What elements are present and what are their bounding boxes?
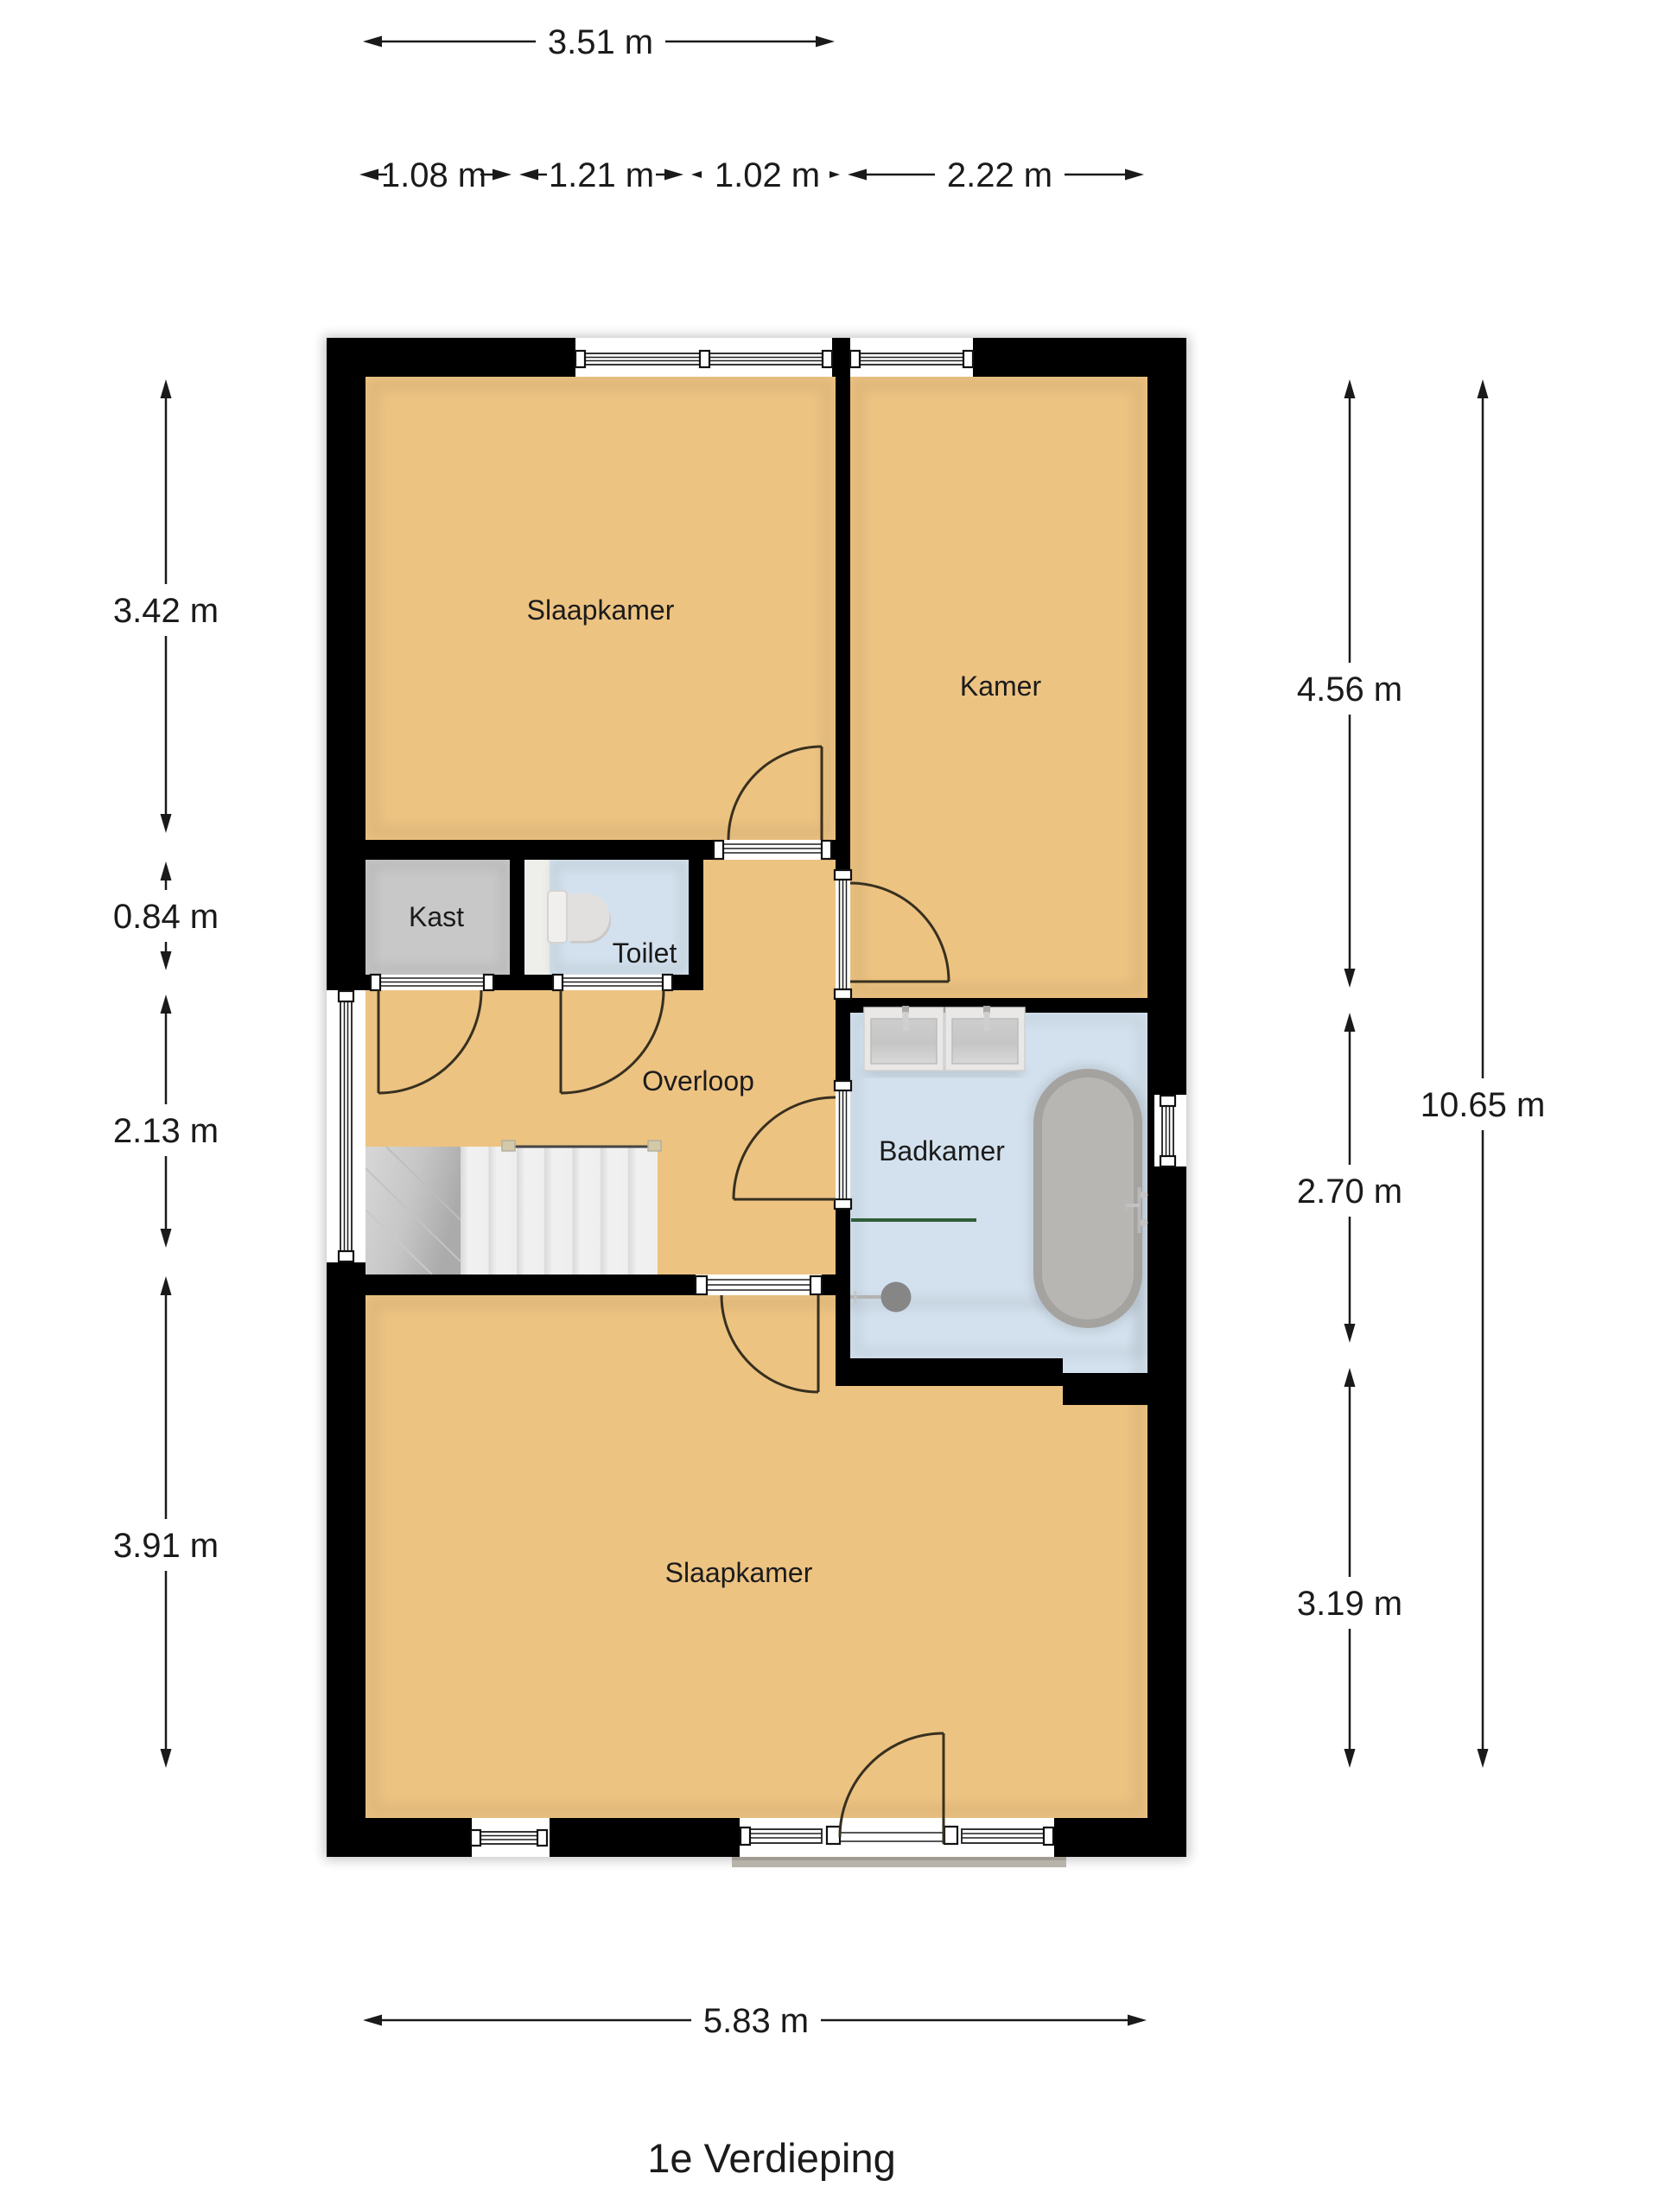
svg-text:Kamer: Kamer (960, 671, 1042, 702)
svg-text:2.22 m: 2.22 m (947, 156, 1052, 194)
svg-text:Toilet: Toilet (613, 938, 677, 969)
svg-text:3.19 m: 3.19 m (1297, 1585, 1402, 1623)
svg-text:1.21 m: 1.21 m (549, 156, 654, 194)
svg-text:Badkamer: Badkamer (879, 1135, 1005, 1166)
svg-text:3.91 m: 3.91 m (113, 1527, 219, 1565)
svg-text:1.02 m: 1.02 m (715, 156, 820, 194)
svg-text:2.70 m: 2.70 m (1297, 1173, 1402, 1211)
svg-text:1.08 m: 1.08 m (381, 156, 486, 194)
svg-text:4.56 m: 4.56 m (1297, 671, 1402, 709)
svg-text:Slaapkamer: Slaapkamer (527, 594, 675, 626)
svg-text:Overloop: Overloop (642, 1065, 754, 1096)
svg-text:10.65 m: 10.65 m (1421, 1086, 1546, 1124)
svg-text:Slaapkamer: Slaapkamer (665, 1557, 813, 1588)
svg-text:3.51 m: 3.51 m (548, 23, 653, 61)
svg-text:1e Verdieping: 1e Verdieping (647, 2135, 895, 2181)
svg-text:Kast: Kast (409, 901, 464, 932)
svg-text:0.84 m: 0.84 m (113, 898, 219, 936)
svg-text:2.13 m: 2.13 m (113, 1112, 219, 1150)
svg-text:3.42 m: 3.42 m (113, 592, 219, 630)
svg-text:5.83 m: 5.83 m (703, 2002, 809, 2040)
